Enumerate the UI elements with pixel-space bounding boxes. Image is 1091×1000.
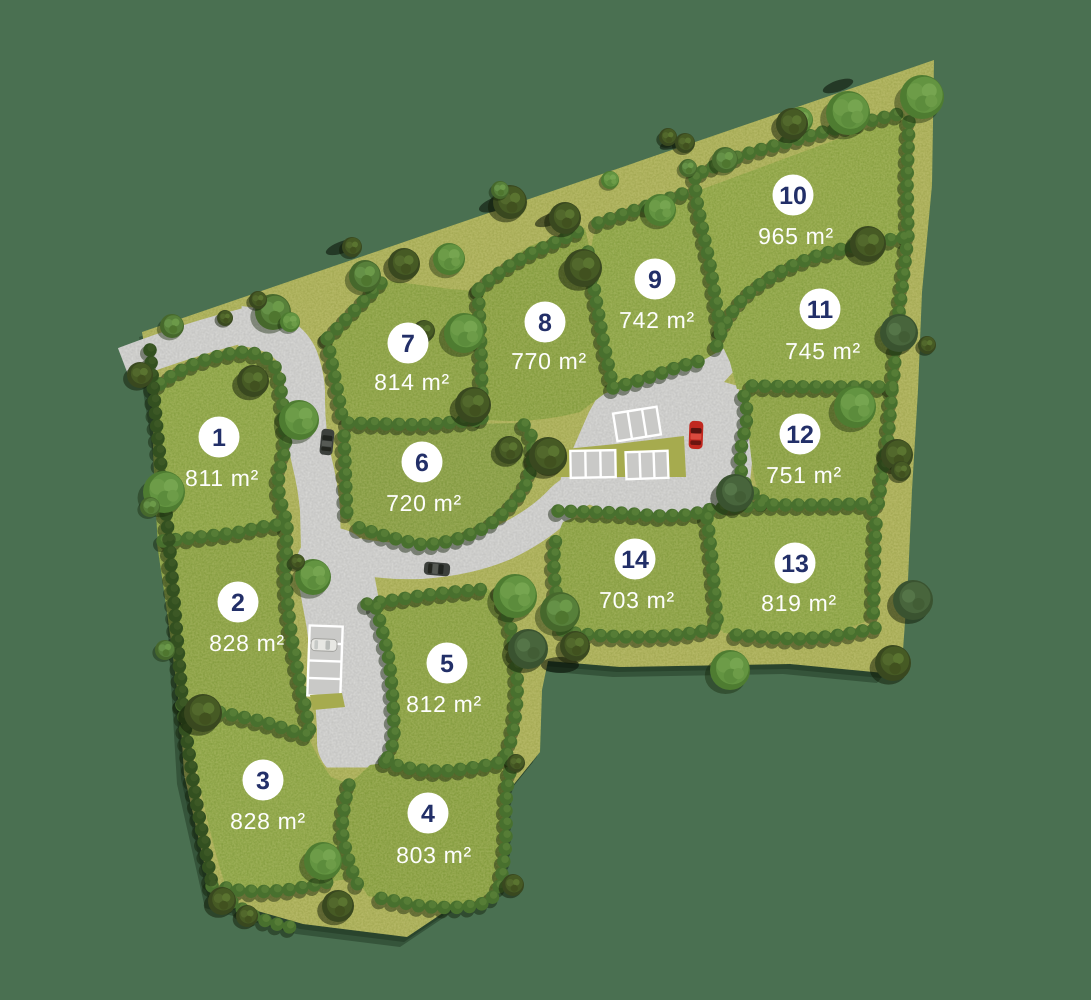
svg-text:12: 12 [786, 421, 814, 449]
svg-text:751 m²: 751 m² [766, 462, 842, 488]
svg-text:814 m²: 814 m² [374, 369, 450, 395]
svg-text:811 m²: 811 m² [185, 465, 259, 491]
svg-text:11: 11 [807, 296, 834, 324]
svg-text:812 m²: 812 m² [406, 691, 482, 717]
svg-text:8: 8 [538, 309, 552, 337]
svg-text:4: 4 [421, 800, 435, 828]
svg-text:703 m²: 703 m² [599, 587, 675, 613]
svg-text:9: 9 [648, 266, 662, 294]
svg-text:745 m²: 745 m² [785, 338, 861, 364]
svg-text:6: 6 [415, 449, 429, 477]
svg-text:10: 10 [779, 182, 807, 210]
svg-text:965 m²: 965 m² [758, 223, 834, 249]
svg-text:14: 14 [621, 546, 649, 574]
svg-text:1: 1 [212, 424, 226, 452]
svg-text:2: 2 [231, 589, 245, 617]
svg-text:5: 5 [440, 650, 454, 678]
svg-text:13: 13 [781, 550, 809, 578]
svg-text:828 m²: 828 m² [230, 808, 306, 834]
svg-text:828 m²: 828 m² [209, 630, 285, 656]
svg-text:770 m²: 770 m² [511, 348, 587, 374]
svg-text:720 m²: 720 m² [386, 490, 462, 516]
svg-text:819 m²: 819 m² [761, 590, 837, 616]
svg-text:803 m²: 803 m² [396, 842, 472, 868]
svg-text:7: 7 [401, 330, 415, 358]
svg-text:742 m²: 742 m² [619, 307, 695, 333]
svg-text:3: 3 [256, 767, 270, 795]
